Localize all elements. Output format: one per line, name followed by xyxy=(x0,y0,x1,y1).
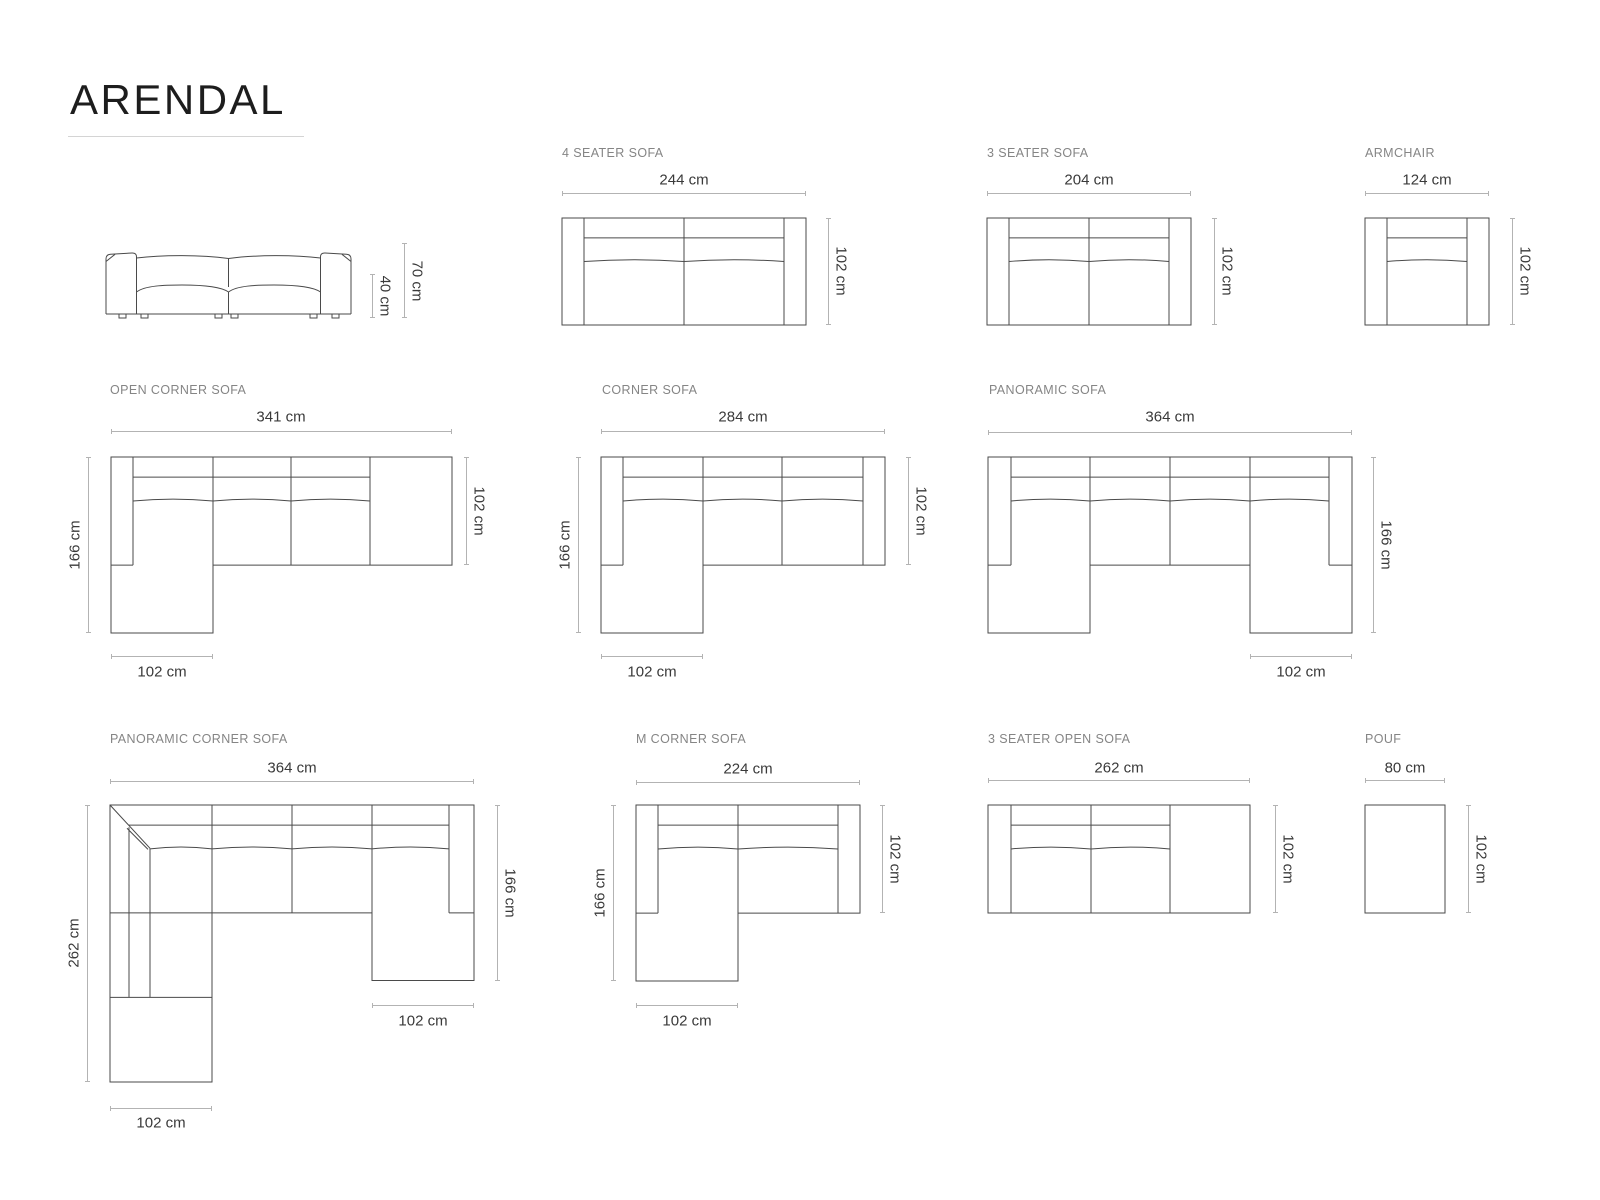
figure-label-3-seater: 3 SEATER SOFA xyxy=(987,146,1089,160)
dim-line-width-open-corner xyxy=(111,431,452,432)
plan-3-seater-open-sofa xyxy=(988,805,1250,913)
figure-label-4-seater: 4 SEATER SOFA xyxy=(562,146,664,160)
dim-width-3-seater-open: 262 cm xyxy=(1094,760,1143,777)
dim-width-corner: 284 cm xyxy=(718,409,767,426)
dim-line-width-panoramic-corner xyxy=(110,781,474,782)
dim-total-depth-m-corner: 166 cm xyxy=(592,868,609,917)
dim-line-depth-m-corner xyxy=(882,805,883,913)
dim-width-3-seater: 204 cm xyxy=(1064,172,1113,189)
dim-line-chaise-open-corner xyxy=(111,656,213,657)
dim-line-width-3-seater xyxy=(987,193,1191,194)
dim-width-m-corner: 224 cm xyxy=(723,761,772,778)
dim-total-depth-open-corner: 166 cm xyxy=(67,520,84,569)
dim-line-depth-4-seater xyxy=(828,218,829,325)
dim-line-total-depth-m-corner xyxy=(613,805,614,981)
dim-line-depth-open-corner xyxy=(466,457,467,565)
figure-label-corner: CORNER SOFA xyxy=(602,383,697,397)
dim-line-depth-corner xyxy=(908,457,909,565)
dim-line-depth-armchair xyxy=(1512,218,1513,325)
dim-width-open-corner: 341 cm xyxy=(256,409,305,426)
dim-line-back-height xyxy=(404,243,405,318)
dim-line-chaise-m-corner xyxy=(636,1005,738,1006)
dim-depth-3-seater-open: 102 cm xyxy=(1280,834,1297,883)
dim-width-4-seater: 244 cm xyxy=(659,172,708,189)
dim-left-depth-panoramic-corner: 262 cm xyxy=(66,918,83,967)
dim-line-width-panoramic xyxy=(988,432,1352,433)
plan-corner-sofa xyxy=(601,457,885,633)
dim-back-height: 70 cm xyxy=(409,261,426,302)
dim-right-depth-panoramic-corner: 166 cm xyxy=(502,868,519,917)
dim-depth-3-seater: 102 cm xyxy=(1219,246,1236,295)
dim-line-width-3-seater-open xyxy=(988,780,1250,781)
dim-line-chaise-panoramic xyxy=(1250,656,1352,657)
dim-chaise-left-panoramic-corner: 102 cm xyxy=(136,1115,185,1132)
dim-line-width-corner xyxy=(601,431,885,432)
dim-line-left-depth-panoramic-corner xyxy=(87,805,88,1082)
dim-line-seat-height xyxy=(372,274,373,318)
dim-width-panoramic: 364 cm xyxy=(1145,409,1194,426)
spec-sheet: ARENDAL 40 cm 70 cm 4 SEATER SOFA 244 cm xyxy=(0,0,1600,1200)
plan-4-seater-sofa xyxy=(562,218,806,325)
dim-width-armchair: 124 cm xyxy=(1402,172,1451,189)
figure-label-armchair: ARMCHAIR xyxy=(1365,146,1435,160)
dim-chaise-right-panoramic-corner: 102 cm xyxy=(398,1013,447,1030)
figure-label-pouf: POUF xyxy=(1365,732,1401,746)
dim-seat-height: 40 cm xyxy=(377,276,394,317)
figure-label-3-seater-open: 3 SEATER OPEN SOFA xyxy=(988,732,1130,746)
plan-m-corner-sofa xyxy=(636,805,860,981)
dim-line-width-4-seater xyxy=(562,193,806,194)
dim-line-total-depth-open-corner xyxy=(88,457,89,633)
figure-label-panoramic: PANORAMIC SOFA xyxy=(989,383,1106,397)
plan-open-corner-sofa xyxy=(111,457,452,633)
dim-line-width-armchair xyxy=(1365,193,1489,194)
dim-chaise-panoramic: 102 cm xyxy=(1276,664,1325,681)
figure-label-panoramic-corner: PANORAMIC CORNER SOFA xyxy=(110,732,288,746)
plan-panoramic-corner-sofa xyxy=(110,805,474,1082)
figure-label-m-corner: M CORNER SOFA xyxy=(636,732,746,746)
dim-chaise-open-corner: 102 cm xyxy=(137,664,186,681)
dim-line-chaise-right-panoramic-corner xyxy=(372,1005,474,1006)
dim-line-depth-pouf xyxy=(1468,805,1469,913)
dim-depth-armchair: 102 cm xyxy=(1517,246,1534,295)
dim-line-depth-3-seater xyxy=(1214,218,1215,325)
dim-line-depth-3-seater-open xyxy=(1275,805,1276,913)
figure-label-open-corner: OPEN CORNER SOFA xyxy=(110,383,246,397)
page-title: ARENDAL xyxy=(70,76,286,124)
dim-total-depth-panoramic: 166 cm xyxy=(1378,520,1395,569)
dim-line-total-depth-panoramic xyxy=(1373,457,1374,633)
dim-total-depth-corner: 166 cm xyxy=(557,520,574,569)
dim-width-pouf: 80 cm xyxy=(1385,760,1426,777)
dim-chaise-m-corner: 102 cm xyxy=(662,1013,711,1030)
dim-depth-4-seater: 102 cm xyxy=(833,246,850,295)
plan-3-seater-sofa xyxy=(987,218,1191,325)
dim-line-chaise-left-panoramic-corner xyxy=(110,1108,212,1109)
dim-line-chaise-corner xyxy=(601,656,703,657)
dim-chaise-corner: 102 cm xyxy=(627,664,676,681)
dim-depth-pouf: 102 cm xyxy=(1473,834,1490,883)
dim-depth-open-corner: 102 cm xyxy=(471,486,488,535)
plan-pouf xyxy=(1365,805,1445,913)
title-underline xyxy=(68,136,304,137)
dim-line-width-pouf xyxy=(1365,780,1445,781)
plan-armchair xyxy=(1365,218,1489,325)
plan-panoramic-sofa xyxy=(988,457,1352,633)
dim-line-width-m-corner xyxy=(636,782,860,783)
dim-line-right-depth-panoramic-corner xyxy=(497,805,498,981)
dim-width-panoramic-corner: 364 cm xyxy=(267,760,316,777)
dim-line-total-depth-corner xyxy=(578,457,579,633)
dim-depth-m-corner: 102 cm xyxy=(887,834,904,883)
front-view-drawing xyxy=(105,244,352,319)
dim-depth-corner: 102 cm xyxy=(913,486,930,535)
